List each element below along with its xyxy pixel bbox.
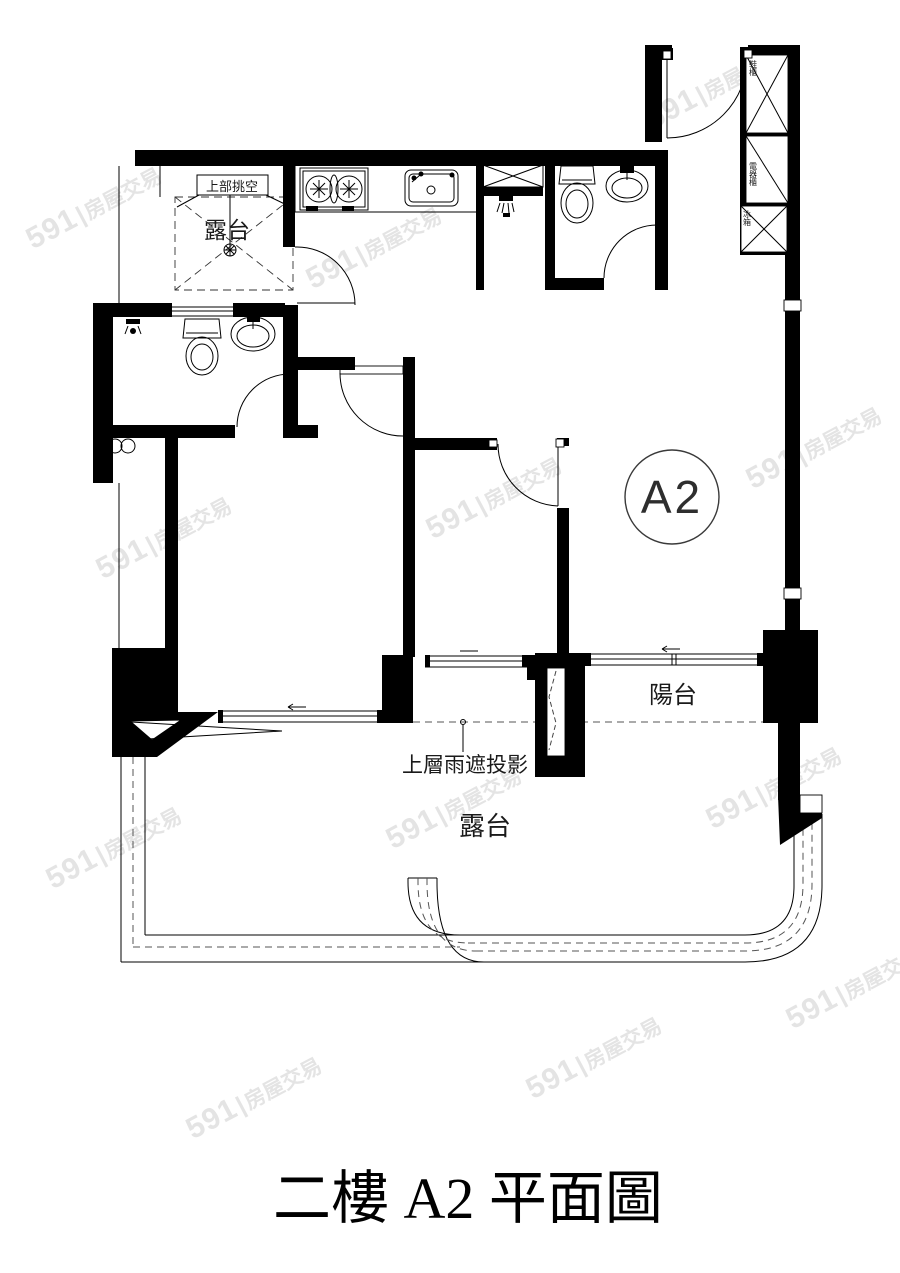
terrace-top-label: 露台 — [204, 217, 250, 243]
wall-notch — [800, 795, 822, 813]
bedroom2-window — [425, 656, 527, 667]
basin-icon — [606, 166, 648, 202]
shower-icon — [497, 196, 514, 217]
plan-title: 二樓 A2 平面圖 — [273, 1166, 663, 1231]
ramp-triangle — [130, 720, 282, 740]
wall-notch — [784, 588, 801, 599]
pillar-slot — [547, 668, 565, 756]
cabinet-bottom-label: 冰箱 — [743, 209, 752, 227]
bedroom2-door-swing — [498, 444, 558, 506]
skylight-void-outline — [175, 197, 293, 290]
toilet-icon — [183, 319, 221, 375]
bathroom1-door-swing — [237, 374, 290, 427]
walls — [93, 45, 822, 845]
shower-icon — [125, 319, 141, 334]
floor-plan-page: 591|房屋交易 591|房屋交易 591|房屋交易 591|房屋交易 591|… — [0, 0, 900, 1273]
cabinet-middle-label: 電器櫃 — [749, 162, 758, 187]
cabinet-top-label: 鞋櫃 — [749, 59, 758, 77]
entry-door-swing — [667, 58, 747, 138]
hinge-caps — [489, 50, 752, 447]
rain-cover-leader — [461, 720, 466, 753]
toilet-icon — [559, 166, 595, 223]
rain-cover-label: 上層雨遮投影 — [402, 754, 528, 777]
floor-plan-drawing: 上部挑空 露台 A2 陽台 上層雨遮投影 露台 鞋櫃 電器櫃 冰箱 二樓 A2 … — [0, 0, 900, 1273]
wall-notch — [784, 300, 801, 311]
bedroom1-door-swing — [340, 373, 403, 436]
terrace-door-swing — [295, 247, 355, 305]
kitchen-sink-icon — [405, 170, 458, 206]
void-above-label: 上部挑空 — [206, 179, 258, 194]
balcony-label: 陽台 — [649, 682, 697, 709]
balcony-slider — [585, 654, 763, 665]
basin-icon — [231, 316, 275, 351]
stove-icon — [300, 168, 368, 211]
unit-label: A2 — [641, 471, 703, 523]
exterior-boundary-lines — [119, 166, 822, 962]
pipe-shaft-icon — [483, 165, 543, 196]
bathroom1-window — [172, 307, 233, 316]
bedroom1-window — [218, 711, 383, 722]
bathroom2-door-swing — [604, 225, 657, 278]
terrace-bottom-label: 露台 — [459, 811, 511, 841]
